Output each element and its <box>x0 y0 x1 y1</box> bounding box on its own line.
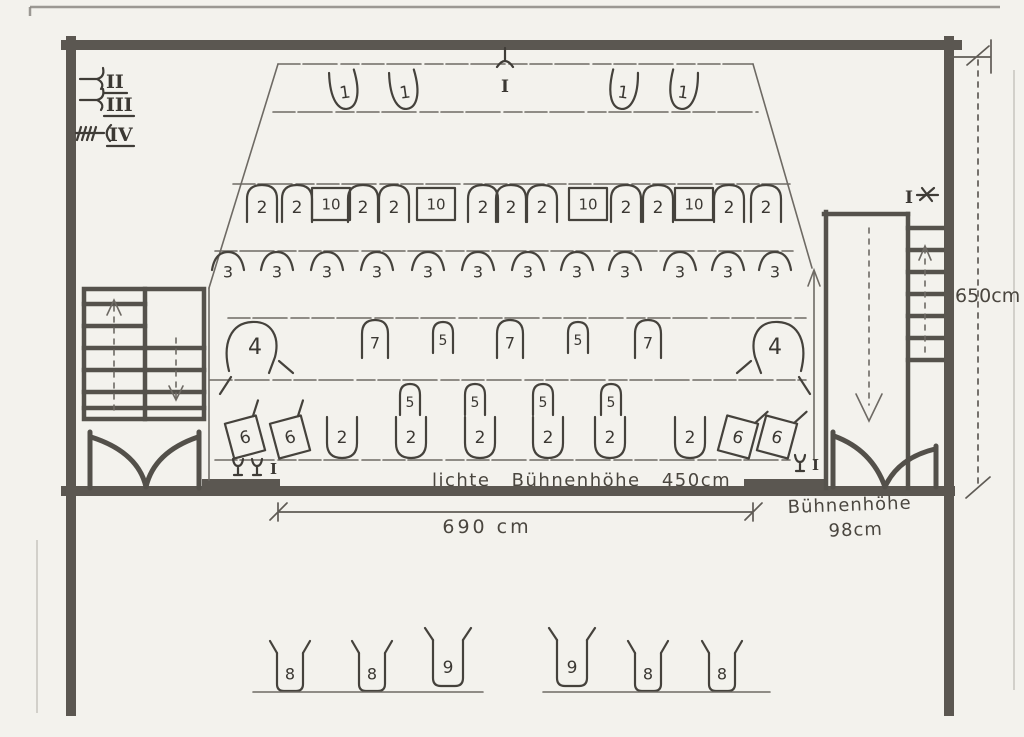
fixture-2: 2 <box>595 417 625 458</box>
fixture-3: 3 <box>212 252 244 282</box>
fixture-2: 2 <box>643 185 673 222</box>
fixture-1: 1 <box>667 69 699 110</box>
row-3-dome-lights: 333333333333 <box>212 252 791 282</box>
fixture-label: 3 <box>423 263 433 282</box>
fixture-label: 3 <box>272 263 282 282</box>
fixture-3: 3 <box>609 252 641 282</box>
fixture-10: 10 <box>569 188 607 220</box>
fixture-3: 3 <box>462 252 494 282</box>
dim-text-690: 690 cm <box>442 516 531 538</box>
fixture-label: 3 <box>473 263 483 282</box>
fixture-2: 2 <box>396 417 426 458</box>
wing-hook-icon <box>252 459 262 475</box>
fixture-2: 2 <box>611 185 641 222</box>
top-center-marker-label: I <box>501 77 509 97</box>
stage-plan-drawing: II III IV I I I I 690 cm 650cm <box>0 0 1024 737</box>
fixture-7: 7 <box>635 320 661 358</box>
fixture-2: 2 <box>348 185 378 222</box>
fixture-label: 2 <box>653 198 664 218</box>
fixture-label: 6 <box>769 427 785 449</box>
fixture-label: 2 <box>389 198 400 218</box>
fixture-label: 10 <box>684 196 703 214</box>
fixture-label: 3 <box>770 263 780 282</box>
fixture-6: 6 <box>757 402 807 460</box>
fixture-label: 2 <box>475 428 486 448</box>
dim-text-650: 650cm <box>955 285 1020 307</box>
fixture-2: 2 <box>379 185 409 222</box>
fixture-2: 2 <box>465 417 495 458</box>
scanned-stage-plan-page: II III IV I I I I 690 cm 650cm <box>0 0 1024 737</box>
stage-left-wing-marks: I <box>233 459 277 478</box>
fixture-label: 5 <box>439 333 448 349</box>
fixture-label: 3 <box>572 263 582 282</box>
left-staircase <box>84 289 204 488</box>
fixture-label: 1 <box>338 82 352 103</box>
fixture-2: 2 <box>496 185 526 222</box>
fixture-label: 7 <box>505 334 515 353</box>
fixture-label: 4 <box>248 335 262 360</box>
fixture-9: 9 <box>425 628 471 686</box>
fixture-label: 6 <box>282 427 298 449</box>
left-double-door <box>91 437 198 487</box>
wing-hook-icon <box>233 459 243 475</box>
fixture-label: 2 <box>358 198 369 218</box>
fixture-7: 7 <box>497 320 523 358</box>
fixture-3: 3 <box>664 252 696 282</box>
fixture-label: 8 <box>285 665 295 684</box>
fixture-label: 9 <box>567 658 578 678</box>
dimension-room-height: 650cm <box>950 40 1020 498</box>
row-6-apron-lights: 6622222266 <box>221 400 806 460</box>
fixture-10: 10 <box>675 188 713 220</box>
fixture-label: 8 <box>717 665 727 684</box>
stage-height-label: Bühnenhöhe <box>787 493 912 518</box>
fixture-label: 2 <box>543 428 554 448</box>
row-7-footlights: 889988 <box>270 628 742 691</box>
right-double-door <box>834 436 935 487</box>
fixture-4: 4 <box>737 322 810 394</box>
stage-right-wing-marks: I <box>795 455 819 474</box>
fixture-label: 5 <box>539 395 548 411</box>
fixture-label: 2 <box>478 198 489 218</box>
fixture-2: 2 <box>282 185 312 222</box>
fixture-label: 2 <box>257 198 268 218</box>
row-4-mid-lights: 4757574 <box>220 320 810 394</box>
legend-numeral-II: II <box>106 71 124 93</box>
fixture-label: 3 <box>675 263 685 282</box>
fixture-4: 4 <box>220 322 293 394</box>
dimension-stage-width: 690 cm <box>270 503 762 538</box>
stage-left-marker-label: I <box>270 460 277 478</box>
fixture-label: 1 <box>616 82 630 103</box>
fixture-3: 3 <box>412 252 444 282</box>
fixture-label: 1 <box>676 82 690 103</box>
right-wall-marker: I <box>905 188 938 208</box>
fixture-label: 3 <box>372 263 382 282</box>
stage-height-note: Bühnenhöhe 98cm <box>787 493 912 543</box>
top-center-marker: I <box>497 48 513 97</box>
fixture-label: 2 <box>506 198 517 218</box>
fixture-10: 10 <box>312 188 350 220</box>
stage-right-marker-label: I <box>812 456 819 474</box>
right-wall-marker-label: I <box>905 188 913 208</box>
fixture-5: 5 <box>465 384 485 415</box>
fixture-label: 3 <box>620 263 630 282</box>
fixture-3: 3 <box>361 252 393 282</box>
fixture-label: 10 <box>321 196 340 214</box>
fixture-6: 6 <box>221 400 271 458</box>
fixture-label: 3 <box>322 263 332 282</box>
fixture-3: 3 <box>311 252 343 282</box>
fixture-5: 5 <box>533 384 553 415</box>
fixture-label: 3 <box>523 263 533 282</box>
fixture-2: 2 <box>327 417 357 458</box>
stage-height-value: 98cm <box>828 519 883 542</box>
fixture-label: 2 <box>685 428 696 448</box>
fixture-label: 9 <box>443 658 454 678</box>
fixture-1: 1 <box>607 69 639 110</box>
left-stair-steps-down <box>145 348 204 408</box>
fixture-label: 4 <box>768 335 782 360</box>
fixture-label: 5 <box>574 333 583 349</box>
fixture-label: 3 <box>723 263 733 282</box>
fixture-6: 6 <box>266 400 316 458</box>
fixture-2: 2 <box>533 417 563 458</box>
fixture-label: 7 <box>643 334 653 353</box>
hook-symbol-III <box>80 89 103 110</box>
hook-symbol-II <box>80 68 103 89</box>
fixture-label: 8 <box>643 665 653 684</box>
wing-hook-icon <box>795 455 805 471</box>
fixture-8: 8 <box>628 641 668 691</box>
fixture-10: 10 <box>417 188 455 220</box>
right-staircase-room <box>824 212 942 488</box>
fixture-label: 8 <box>367 665 377 684</box>
dim-ticks-650 <box>950 40 991 498</box>
hook-cross-icon <box>917 188 938 201</box>
fixture-label: 10 <box>578 196 597 214</box>
fixture-label: 2 <box>537 198 548 218</box>
fixture-5: 5 <box>568 322 588 353</box>
fixture-label: 2 <box>761 198 772 218</box>
fixture-label: 2 <box>406 428 417 448</box>
row-1-top-lights: 1111 <box>328 69 699 110</box>
fixture-5: 5 <box>433 322 453 353</box>
fixture-2: 2 <box>247 185 277 222</box>
fixture-3: 3 <box>512 252 544 282</box>
fixture-label: 5 <box>471 395 480 411</box>
fixture-2: 2 <box>714 185 744 222</box>
fixture-label: 2 <box>621 198 632 218</box>
fixture-type-legend: II III IV <box>76 68 134 146</box>
fixture-2: 2 <box>675 417 705 458</box>
fixture-3: 3 <box>561 252 593 282</box>
fixture-3: 3 <box>712 252 744 282</box>
row-2-arch-lights: 2210221022210221022 <box>247 185 781 222</box>
fixture-label: 1 <box>398 82 412 103</box>
fixture-label: 6 <box>237 427 253 449</box>
fixture-7: 7 <box>362 320 388 358</box>
fixture-5: 5 <box>400 384 420 415</box>
fixture-8: 8 <box>352 641 392 691</box>
fixture-label: 2 <box>605 428 616 448</box>
fixture-5: 5 <box>601 384 621 415</box>
fixture-label: 5 <box>406 395 415 411</box>
fixture-3: 3 <box>261 252 293 282</box>
stage-right-slant <box>753 64 812 268</box>
fixture-label: 2 <box>724 198 735 218</box>
fixture-8: 8 <box>270 641 310 691</box>
scan-artifacts <box>30 7 1014 713</box>
row-5-small-lights: 5555 <box>400 384 621 415</box>
walls <box>66 41 957 711</box>
legend-numeral-III: III <box>106 94 133 116</box>
fixture-2: 2 <box>751 185 781 222</box>
legend-numeral-IV: IV <box>109 124 134 146</box>
fixture-9: 9 <box>549 628 595 686</box>
fixture-label: 3 <box>223 263 233 282</box>
fixture-label: 5 <box>607 395 616 411</box>
fixture-1: 1 <box>388 69 420 110</box>
hatch-hook-symbol-IV <box>76 125 111 141</box>
fixture-1: 1 <box>328 69 360 110</box>
fixture-8: 8 <box>702 641 742 691</box>
fixture-label: 7 <box>370 334 380 353</box>
fixture-label: 10 <box>426 196 445 214</box>
fixture-2: 2 <box>468 185 498 222</box>
fixture-label: 2 <box>292 198 303 218</box>
fixture-label: 2 <box>337 428 348 448</box>
fixture-3: 3 <box>759 252 791 282</box>
clear-height-text: lichte Bühnenhöhe 450cm <box>432 470 731 491</box>
fixture-label: 6 <box>730 427 746 449</box>
fixture-2: 2 <box>527 185 557 222</box>
